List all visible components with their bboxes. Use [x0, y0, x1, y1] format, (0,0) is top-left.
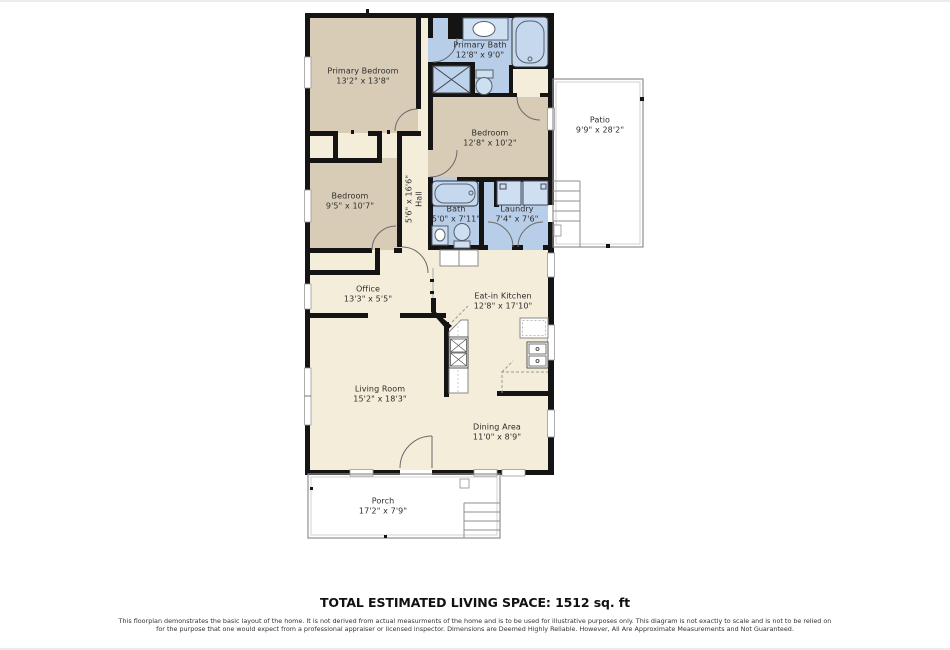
room-label-hall: 5'6" x 16'6" Hall: [405, 175, 426, 223]
room-name: Eat-in Kitchen: [474, 292, 531, 302]
room-name: Office: [356, 285, 380, 295]
room-dims: 11'0" x 8'9": [473, 433, 521, 443]
room-dims: 5'6" x 16'6": [405, 175, 415, 223]
room-name: Hall: [415, 191, 425, 207]
room-name: Living Room: [355, 385, 405, 395]
room-dims: 9'9" x 28'2": [576, 126, 624, 136]
room-label-porch: Porch 17'2" x 7'9": [359, 497, 407, 518]
room-name: Bedroom: [332, 192, 369, 202]
room-dims: 12'8" x 9'0": [456, 51, 504, 61]
room-label-office: Office 13'3" x 5'5": [344, 285, 392, 306]
room-dims: 12'8" x 17'10": [474, 302, 533, 312]
room-name: Bath: [446, 205, 465, 215]
room-dims: 7'4" x 7'6": [495, 215, 538, 225]
room-dims: 15'2" x 18'3": [353, 395, 406, 405]
porch-stairs: [464, 503, 500, 538]
room-name: Dining Area: [473, 423, 521, 433]
room-label-bath: Bath 5'0" x 7'11": [432, 205, 480, 226]
patio-outline: [553, 79, 644, 248]
room-dims: 13'3" x 5'5": [344, 295, 392, 305]
room-label-eat-in-kitchen: Eat-in Kitchen 12'8" x 17'10": [474, 292, 533, 313]
patio-stairs: [553, 181, 580, 247]
room-label-bedroom-3: Bedroom 9'5" x 10'7": [326, 192, 374, 213]
room-label-bedroom-2: Bedroom 12'8" x 10'2": [463, 129, 516, 150]
room-dims: 5'0" x 7'11": [432, 215, 480, 225]
room-label-living-room: Living Room 15'2" x 18'3": [353, 385, 406, 406]
room-label-dining-area: Dining Area 11'0" x 8'9": [473, 423, 521, 444]
room-label-laundry: Laundry 7'4" x 7'6": [495, 205, 538, 226]
room-name: Laundry: [500, 205, 533, 215]
floorplan-graphic: [0, 0, 950, 650]
room-dims: 13'2" x 13'8": [336, 77, 389, 87]
room-dims: 9'5" x 10'7": [326, 202, 374, 212]
room-label-patio: Patio 9'9" x 28'2": [576, 116, 624, 137]
room-name: Primary Bedroom: [327, 67, 398, 77]
room-label-primary-bath: Primary Bath 12'8" x 9'0": [453, 41, 506, 62]
room-name: Bedroom: [472, 129, 509, 139]
room-label-primary-bedroom: Primary Bedroom 13'2" x 13'8": [327, 67, 398, 88]
total-living-space-text: TOTAL ESTIMATED LIVING SPACE: 1512 sq. f…: [0, 595, 950, 610]
room-name: Patio: [590, 116, 610, 126]
floorplan-page: Primary Bedroom 13'2" x 13'8" Primary Ba…: [0, 0, 950, 650]
disclaimer-text: This floorplan demonstrates the basic la…: [115, 617, 835, 633]
room-name: Primary Bath: [453, 41, 506, 51]
room-name: Porch: [372, 497, 395, 507]
room-dims: 17'2" x 7'9": [359, 507, 407, 517]
room-dims: 12'8" x 10'2": [463, 139, 516, 149]
